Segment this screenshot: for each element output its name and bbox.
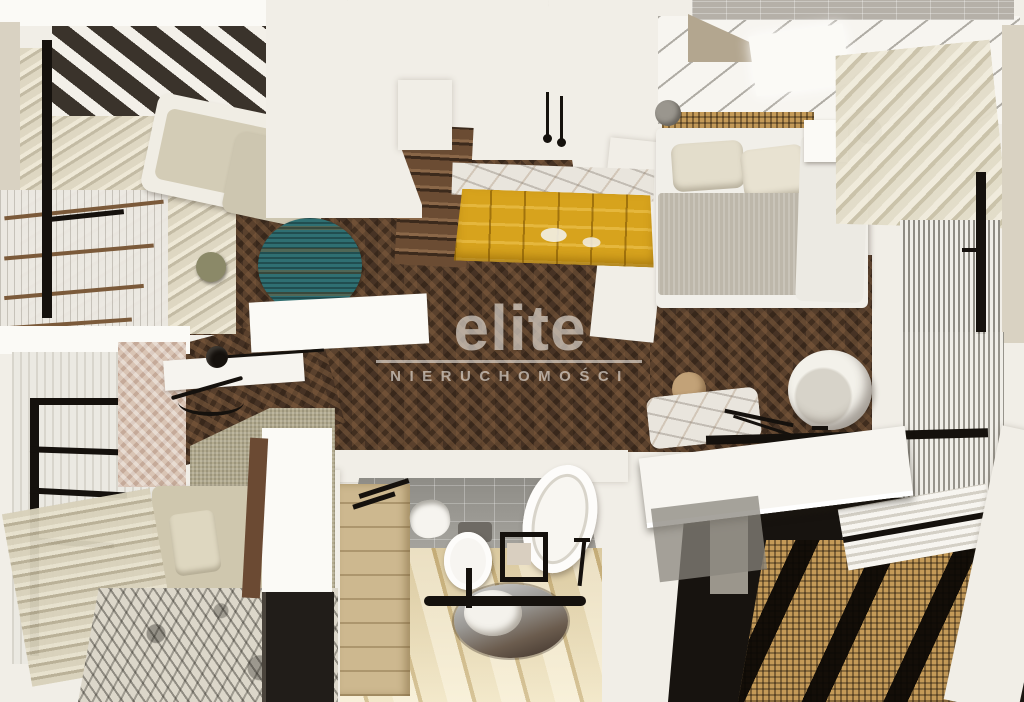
- watermark-brand: elite: [420, 296, 620, 360]
- radiator-frame-line: [843, 511, 992, 543]
- bed-pillow: [670, 140, 745, 193]
- kitchen-sink: [541, 228, 567, 243]
- desk-shadow: [651, 496, 767, 583]
- door-handle: [962, 248, 978, 252]
- right-wall-edge: [1002, 25, 1024, 343]
- watermark-divider-line: [376, 360, 642, 363]
- kitchen-dish: [582, 237, 600, 248]
- tub-tap-spout: [574, 538, 590, 542]
- desk-lamp-head: [206, 346, 228, 368]
- pendant-light-bulb: [557, 138, 566, 147]
- stool-towel: [507, 543, 531, 565]
- glass-partition: [0, 190, 168, 332]
- egg-armchair: [788, 350, 872, 430]
- office-sofa-pillow: [168, 509, 222, 577]
- office-bathroom-divider-white: [262, 428, 332, 596]
- office-bathroom-divider-dark: [262, 592, 334, 702]
- kitchen-wall-column: [398, 80, 452, 150]
- rocking-chair-seat: [178, 388, 244, 416]
- partition-handle: [812, 426, 828, 430]
- apartment-floorplan-render: elite NIERUCHOMOŚCI: [0, 0, 1024, 702]
- curtain-column: [42, 40, 52, 318]
- olive-pouf: [196, 252, 226, 282]
- pendant-light-cord: [560, 96, 563, 142]
- partition-rail: [4, 243, 154, 260]
- living-office-divider-wall: [249, 293, 429, 352]
- rocking-chair: [170, 382, 254, 416]
- partition-rail: [4, 284, 144, 300]
- vanity-towel-bar: [424, 596, 586, 606]
- bedroom-ceiling-lamp: [655, 100, 681, 126]
- pendant-light-cord: [546, 92, 549, 138]
- kitchen-gold-cabinets: [454, 189, 656, 268]
- bed-blanket: [658, 193, 810, 295]
- bathroom-vanity-wall: [340, 484, 410, 696]
- watermark-subtitle: NIERUCHOMOŚCI: [370, 368, 650, 385]
- bedroom-top-brick-wall: [692, 0, 1014, 20]
- shower-stool: [500, 532, 548, 582]
- basin-tap: [466, 568, 472, 608]
- top-wall-band: [0, 0, 272, 26]
- bedroom-door-frame: [976, 172, 986, 334]
- pendant-light-bulb: [543, 134, 552, 143]
